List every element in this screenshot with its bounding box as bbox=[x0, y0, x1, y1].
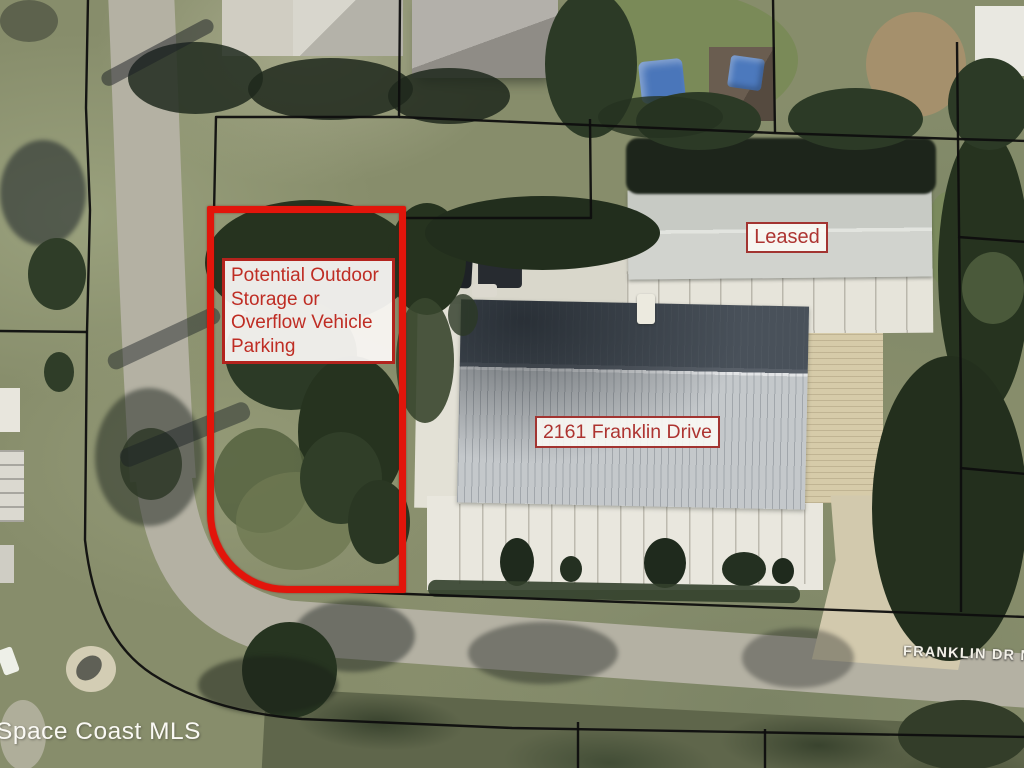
brush bbox=[962, 252, 1024, 324]
trees bbox=[448, 294, 478, 336]
blue-tarp bbox=[727, 55, 765, 91]
tree-shadow bbox=[742, 628, 854, 688]
cul-de-sac-pad bbox=[66, 646, 116, 692]
white-truck bbox=[637, 294, 655, 324]
tree bbox=[28, 238, 86, 310]
stored-item bbox=[722, 552, 766, 586]
tree-shadow bbox=[0, 140, 86, 246]
neighbor-roof bbox=[0, 388, 20, 432]
stored-item bbox=[644, 538, 686, 588]
trees bbox=[388, 68, 510, 124]
mls-watermark: Space Coast MLS bbox=[0, 718, 201, 746]
main-building bbox=[457, 299, 809, 509]
neighbor-roof bbox=[0, 450, 24, 522]
house-roof bbox=[412, 0, 558, 78]
tree-shadow bbox=[468, 622, 618, 684]
aerial-photo: Potential Outdoor Storage or Overflow Ve… bbox=[0, 0, 1024, 768]
stored-item bbox=[772, 558, 794, 584]
tree-shadow bbox=[198, 656, 338, 714]
house-roof bbox=[293, 0, 403, 56]
tree-shadow bbox=[0, 0, 58, 42]
stored-item bbox=[500, 538, 534, 586]
concrete-tan-east bbox=[799, 333, 883, 503]
parking-note-box: Potential Outdoor Storage or Overflow Ve… bbox=[222, 258, 395, 364]
trees bbox=[898, 700, 1024, 768]
trees bbox=[872, 356, 1024, 661]
parked-car-white bbox=[472, 284, 497, 297]
stored-item bbox=[560, 556, 582, 582]
trees bbox=[788, 88, 923, 150]
tree bbox=[44, 352, 74, 392]
trees bbox=[598, 96, 723, 138]
leased-label: Leased bbox=[746, 222, 828, 253]
trees bbox=[248, 58, 413, 120]
address-label: 2161 Franklin Drive bbox=[535, 416, 720, 448]
trees bbox=[948, 58, 1024, 150]
trees bbox=[425, 196, 660, 270]
pad-shadow bbox=[72, 650, 105, 685]
neighbor-roof bbox=[0, 545, 14, 583]
